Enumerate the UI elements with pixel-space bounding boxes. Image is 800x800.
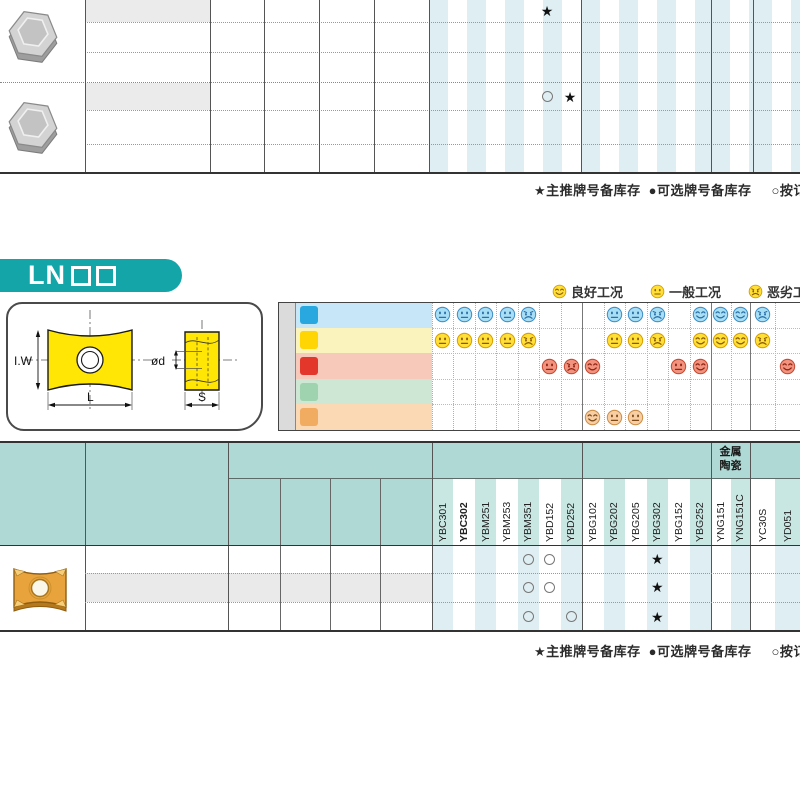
insert-drawing-panel: I.W L ød S [6, 302, 263, 431]
dimension-value [319, 2, 374, 20]
material-class-icon [300, 408, 318, 426]
row-separator [85, 110, 800, 111]
stock-legend-circle: ○按订单 [772, 180, 800, 199]
grade-label-YC30S: YC30S [755, 481, 771, 542]
grid-line [453, 302, 454, 430]
grade-label-YBD152: YBD152 [542, 481, 558, 542]
dimension-value [330, 545, 380, 573]
table-border [278, 430, 800, 431]
hnex-insert-table: ★★ [0, 0, 800, 173]
grade-col-bg [582, 545, 604, 632]
column-line [319, 0, 320, 172]
placeholder-box [96, 266, 116, 286]
material-class-icon [300, 383, 318, 401]
dimension-value [210, 2, 264, 20]
column-line [432, 441, 433, 632]
insert-photo-hexagon [3, 99, 63, 157]
section-line [582, 302, 583, 430]
dim-column-line [330, 478, 331, 632]
grade-label-YBG202: YBG202 [606, 481, 622, 542]
workpiece-material-table [278, 302, 800, 430]
suitability-face-good-YBG102 [584, 358, 601, 375]
suitability-face-poor-YBM351 [520, 332, 537, 349]
header-group-1 [582, 441, 711, 478]
section-line [750, 302, 751, 430]
header-model [85, 441, 228, 545]
row-separator [85, 144, 800, 145]
insert-model [85, 88, 210, 106]
grade-stripes [581, 0, 711, 172]
column-line [228, 441, 229, 632]
suitability-face-fair-YBC302 [456, 332, 473, 349]
dimension-value [264, 2, 319, 20]
row-separator [85, 602, 800, 603]
suitability-face-fair-YBD152 [541, 358, 558, 375]
grid-line [731, 302, 732, 430]
section-title-placeholder-boxes [66, 266, 116, 286]
grade-label-YBG205: YBG205 [628, 481, 644, 542]
dimension-value [330, 573, 380, 602]
suitability-face-good-YBG252 [692, 332, 709, 349]
dim-label-od: ød [151, 354, 165, 368]
dimension-value [319, 88, 374, 106]
grid-line [561, 302, 562, 430]
column-line [753, 0, 754, 172]
header-shape [0, 441, 85, 545]
grade-col-bg [690, 545, 712, 632]
grid-line [625, 302, 626, 430]
grade-col-bg [731, 545, 751, 632]
primary-stock-star-YBG302: ★ [649, 608, 665, 626]
material-class-icon [300, 306, 318, 324]
stock-legend-bottom: ★主推牌号备库存 ●可选牌号备库存 ○按订单 [534, 641, 800, 660]
grade-label-YBC302: YBC302 [456, 481, 472, 542]
grade-col-bg [432, 545, 453, 632]
placeholder-box [71, 266, 91, 286]
suitability-face-fair-YBG202 [606, 409, 623, 426]
suitability-face-poor-YBD252 [563, 358, 580, 375]
order-circle-YBM351 [523, 554, 534, 565]
suitability-face-good-YNG151C [732, 332, 749, 349]
condition-legend-label: 良好工况 [571, 282, 623, 301]
grade-col-bg [475, 545, 496, 632]
suitability-face-fair-YBG205 [627, 306, 644, 323]
header-band-line [228, 478, 800, 479]
condition-legend-item: 良好工况 [552, 282, 623, 301]
grid-line [432, 379, 800, 380]
suitability-face-poor-YBM351 [520, 306, 537, 323]
insert-photo-hexagon [3, 8, 63, 66]
grade-stripes [711, 0, 753, 172]
header-dim-I.W [280, 478, 330, 545]
dim-label-l: L [87, 390, 94, 404]
fair-face-icon [650, 284, 665, 299]
dimension-value [228, 573, 280, 602]
header-group-0 [432, 441, 582, 478]
insert-model [96, 545, 226, 573]
suitability-face-good-YNG151C [732, 306, 749, 323]
grade-label-YBM251: YBM251 [478, 481, 494, 542]
column-line [750, 441, 751, 632]
grade-label-YBG102: YBG102 [585, 481, 601, 542]
suitability-face-fair-YBG205 [627, 332, 644, 349]
column-line [711, 0, 712, 172]
grade-col-bg [750, 545, 775, 632]
grid-line [539, 302, 540, 430]
header-dim-S [330, 478, 380, 545]
order-circle-YBD252 [566, 611, 577, 622]
material-name [323, 379, 431, 405]
dimension-value [280, 573, 330, 602]
stock-legend-circle: ○按订单 [772, 641, 800, 660]
header-group-cermet-line: 金属 [720, 446, 742, 459]
suitability-face-good-YBG102 [584, 409, 601, 426]
dim-label-iw: I.W [14, 354, 33, 368]
suitability-face-fair-YBC301 [434, 306, 451, 323]
primary-stock-star-marker: ★ [562, 88, 578, 106]
order-circle-marker [542, 91, 553, 102]
table-bottom-border [0, 630, 800, 632]
order-circle-YBD152 [544, 554, 555, 565]
table-bottom-border [0, 172, 800, 174]
column-line [85, 0, 86, 172]
dim-column-line [380, 478, 381, 632]
suitability-face-fair-YBM253 [499, 306, 516, 323]
primary-stock-star-marker: ★ [539, 2, 555, 20]
insert-photo [9, 562, 71, 616]
header-dims-group [228, 441, 432, 478]
header-group-cermet: 金属陶瓷 [711, 441, 750, 478]
grade-label-YBG302: YBG302 [649, 481, 665, 542]
table-top-border [0, 441, 800, 443]
insert-dimension-drawing: I.W L ød S [8, 304, 261, 429]
dimension-value [374, 88, 429, 106]
column-line [264, 0, 265, 172]
material-name [323, 404, 431, 430]
grid-line [432, 302, 433, 430]
table-border [278, 302, 279, 430]
header-group-carbide [752, 441, 800, 478]
header-data-line [0, 545, 800, 546]
grid-line [496, 302, 497, 430]
column-line [85, 441, 86, 632]
header-group-cermet-line: 陶瓷 [720, 460, 742, 473]
dimension-value [228, 602, 280, 633]
grid-line [518, 302, 519, 430]
stock-legend-star: ★主推牌号备库存 [534, 180, 641, 199]
section-line [711, 302, 712, 430]
suitability-face-poor-YC30S [754, 306, 771, 323]
grid-line [432, 353, 800, 354]
grid-line [647, 302, 648, 430]
material-name [323, 302, 431, 328]
condition-legend-label: 恶劣工况 [767, 282, 800, 301]
primary-stock-star-YBG302: ★ [649, 550, 665, 568]
material-class-icon [300, 331, 318, 349]
column-line [711, 441, 712, 632]
dimension-value [374, 2, 429, 20]
row-separator [85, 52, 800, 53]
row-separator [85, 22, 800, 23]
row-separator [85, 573, 800, 574]
suitability-face-fair-YBM253 [499, 332, 516, 349]
column-line [581, 0, 582, 172]
grade-label-YBD252: YBD252 [563, 481, 579, 542]
suitability-face-good-YBG252 [692, 358, 709, 375]
suitability-face-fair-YBG205 [627, 409, 644, 426]
grade-label-YBM253: YBM253 [499, 481, 515, 542]
good-face-icon [552, 284, 567, 299]
dimension-value [264, 88, 319, 106]
suitability-face-fair-YBG202 [606, 332, 623, 349]
condition-legend-label: 一般工况 [669, 282, 721, 301]
order-circle-YBM351 [523, 582, 534, 593]
dimension-value [380, 602, 432, 633]
ln-insert-table: 金属陶瓷YBC301YBC302YBM251YBM253YBM351YBD152… [0, 441, 800, 632]
dimension-value [380, 573, 432, 602]
suitability-face-good-YBG252 [692, 306, 709, 323]
grade-col-bg [668, 545, 690, 632]
suitability-face-fair-YBM251 [477, 332, 494, 349]
stock-legend-dot: ●可选牌号备库存 [649, 641, 752, 660]
dimension-value [280, 545, 330, 573]
dimension-value [210, 88, 264, 106]
suitability-face-fair-YBM251 [477, 306, 494, 323]
dim-column-line [280, 478, 281, 632]
dimension-value [228, 545, 280, 573]
grade-col-bg [625, 545, 647, 632]
side-label [279, 312, 295, 420]
grade-col-bg [604, 545, 626, 632]
grid-line [690, 302, 691, 430]
grade-col-bg [775, 545, 800, 632]
grade-label-YBG252: YBG252 [692, 481, 708, 542]
header-dim-L [228, 478, 280, 545]
grid-line [475, 302, 476, 430]
column-line [374, 0, 375, 172]
stock-legend-dot: ●可选牌号备库存 [649, 180, 752, 199]
section-banner: LN [0, 259, 182, 292]
suitability-face-poor-YBG302 [649, 332, 666, 349]
dimension-value [330, 602, 380, 633]
grid-line [432, 328, 800, 329]
material-name [323, 353, 431, 379]
catalog-page: ★★ ★主推牌号备库存 ●可选牌号备库存 ○按订单 LN 良好工况一般工况恶劣工… [0, 0, 800, 800]
insert-model [96, 602, 226, 633]
grade-stripes [429, 0, 581, 172]
suitability-face-good-YNG151 [712, 306, 729, 323]
poor-face-icon [748, 284, 763, 299]
grid-line [604, 302, 605, 430]
suitability-face-fair-YBG202 [606, 306, 623, 323]
suitability-face-fair-YBC302 [456, 306, 473, 323]
condition-legend-item: 一般工况 [650, 282, 721, 301]
grade-col-bg [496, 545, 517, 632]
grade-col-bg [711, 545, 731, 632]
primary-stock-star-YBG302: ★ [649, 578, 665, 596]
suitability-face-good-YNG151 [712, 332, 729, 349]
grid-line [432, 404, 800, 405]
material-class-icon [300, 357, 318, 375]
grade-label-YD051: YD051 [780, 481, 796, 542]
grade-label-YBM351: YBM351 [520, 481, 536, 542]
table-border [278, 302, 800, 303]
stock-legend-top: ★主推牌号备库存 ●可选牌号备库存 ○按订单 [534, 180, 800, 199]
grid-line [775, 302, 776, 430]
suitability-face-fair-YBC301 [434, 332, 451, 349]
grade-stripes [753, 0, 800, 172]
header-dim-ød [380, 478, 432, 545]
column-line [429, 0, 430, 172]
grade-label-YBG152: YBG152 [671, 481, 687, 542]
section-title: LN [28, 262, 66, 289]
suitability-face-poor-YC30S [754, 332, 771, 349]
grade-label-YNG151C: YNG151C [732, 481, 748, 542]
suitability-face-poor-YBG302 [649, 306, 666, 323]
grade-label-YBC301: YBC301 [435, 481, 451, 542]
insert-model [85, 2, 210, 20]
column-line [582, 441, 583, 632]
dimension-value [380, 545, 432, 573]
condition-legend-item: 恶劣工况 [748, 282, 800, 301]
material-name [323, 328, 431, 354]
stock-legend-star: ★主推牌号备库存 [534, 641, 641, 660]
dim-label-s: S [198, 390, 206, 404]
insert-model [96, 573, 226, 602]
dimension-value [280, 602, 330, 633]
column-line [210, 0, 211, 172]
grade-label-YNG151: YNG151 [713, 481, 729, 542]
grid-line [668, 302, 669, 430]
suitability-face-good-YD051 [779, 358, 796, 375]
section-line [295, 302, 296, 430]
block-separator [0, 82, 800, 83]
grade-col-bg [453, 545, 474, 632]
suitability-face-fair-YBG152 [670, 358, 687, 375]
